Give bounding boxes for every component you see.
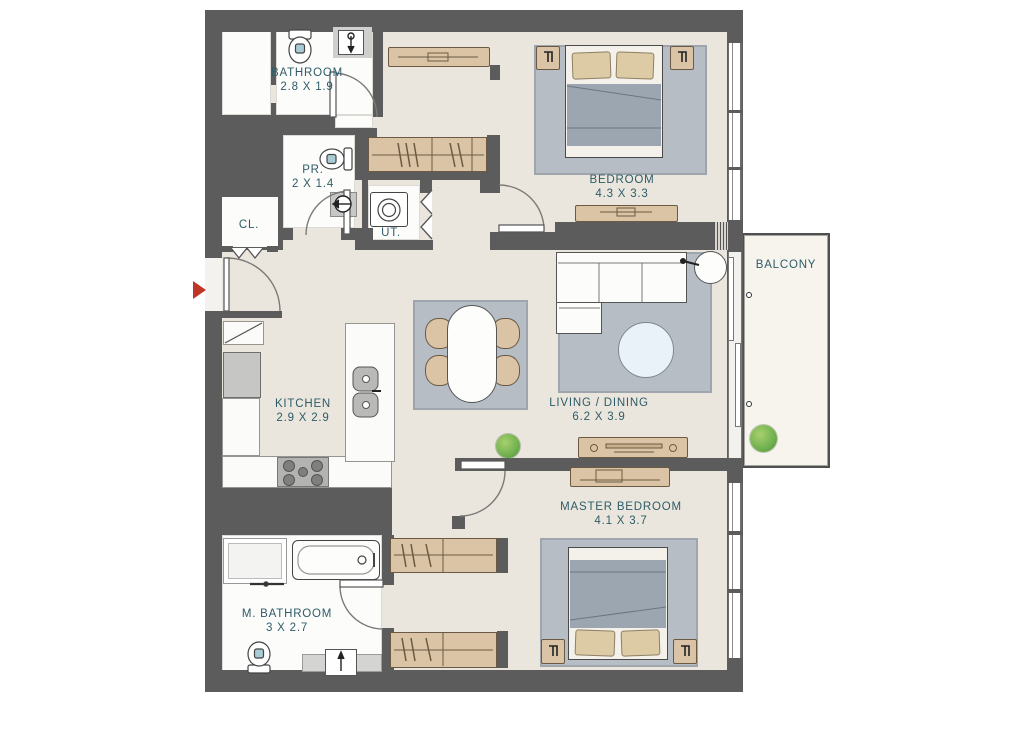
refrigerator [223, 352, 261, 398]
wall-segment [267, 246, 278, 252]
blanket [567, 84, 661, 146]
coffee-table [618, 322, 674, 378]
room-dims: 2.8 X 1.9 [271, 80, 343, 94]
wall-segment [222, 311, 282, 318]
bedroom-window [728, 113, 742, 167]
entry-arrow-icon [193, 281, 206, 299]
label-master-bedroom: MASTER BEDROOM 4.1 X 3.7 [560, 500, 682, 528]
shower [223, 538, 287, 584]
label-closet: CL. [239, 218, 259, 232]
label-utility: UT. [381, 226, 401, 240]
wall-segment [222, 246, 233, 252]
floor-plan: BATHROOM 2.8 X 1.9 PR. 2 X 1.4 CL. UT. B… [0, 0, 1024, 735]
wall-segment [222, 488, 392, 535]
wall-segment [420, 180, 432, 193]
wall-bottom [205, 670, 743, 692]
room-shower-closet [222, 27, 271, 115]
master-wardrobe [390, 538, 497, 573]
bathroom-doorway [335, 115, 373, 128]
room-name: CL. [239, 218, 259, 232]
room-name: BEDROOM [589, 173, 654, 187]
sink-pedestal [330, 192, 357, 217]
wall-segment [487, 135, 500, 180]
slider-panel [728, 257, 734, 341]
bedroom-bed [565, 45, 663, 158]
label-balcony: BALCONY [756, 258, 817, 272]
wall-segment [480, 180, 500, 193]
master-window [728, 535, 742, 589]
pillow [575, 629, 616, 656]
wall-left [205, 10, 222, 692]
wall-segment [497, 538, 508, 573]
pillow [621, 629, 661, 656]
kitchen-counter [222, 398, 260, 456]
room-dims: 6.2 X 3.9 [549, 410, 649, 424]
master-wardrobe [390, 632, 497, 668]
slider-panel [735, 343, 741, 427]
room-name: LIVING / DINING [549, 396, 649, 410]
label-living-dining: LIVING / DINING 6.2 X 3.9 [549, 396, 649, 424]
label-kitchen: KITCHEN 2.9 X 2.9 [275, 397, 331, 425]
room-name: UT. [381, 226, 401, 240]
pillow [616, 51, 655, 79]
master-bed [568, 547, 668, 660]
nightstand [673, 639, 697, 664]
blanket [570, 560, 666, 628]
nightstand [541, 639, 565, 664]
kitchen-cabinet [223, 321, 264, 345]
sink [325, 649, 357, 676]
room-dims: 2.9 X 2.9 [275, 411, 331, 425]
bedroom-window [728, 170, 742, 220]
room-name: BALCONY [756, 258, 817, 272]
wall-hatch [714, 222, 728, 250]
label-bedroom: BEDROOM 4.3 X 3.3 [589, 173, 654, 201]
room-dims: 4.3 X 3.3 [589, 187, 654, 201]
wall-segment [283, 228, 293, 240]
entry-doorway [205, 258, 222, 311]
label-powder: PR. 2 X 1.4 [292, 163, 334, 191]
label-bathroom: BATHROOM 2.8 X 1.9 [271, 66, 343, 94]
wall-top [205, 10, 743, 32]
room-dims: 2 X 1.4 [292, 177, 334, 191]
master-window [728, 593, 742, 658]
wall-segment [355, 240, 433, 250]
wall-segment [368, 172, 490, 180]
room-name: MASTER BEDROOM [560, 500, 682, 514]
nightstand [670, 46, 694, 70]
master-console [570, 467, 670, 487]
wall-segment [497, 631, 508, 668]
master-window [728, 483, 742, 531]
room-name: M. BATHROOM [242, 607, 332, 621]
label-master-bathroom: M. BATHROOM 3 X 2.7 [242, 607, 332, 635]
room-name: PR. [292, 163, 334, 177]
washing-machine [370, 192, 408, 227]
sofa-chaise [556, 302, 602, 334]
pillow [572, 51, 612, 79]
room-name: KITCHEN [275, 397, 331, 411]
bedroom-window [728, 43, 742, 110]
room-dims: 3 X 2.7 [242, 621, 332, 635]
living-plant-icon [496, 434, 520, 458]
bedroom-dresser [575, 205, 678, 222]
sink [338, 30, 364, 55]
nightstand [536, 46, 560, 70]
hall-wardrobe [368, 137, 487, 172]
wall-segment [490, 65, 500, 80]
wall-segment [341, 228, 373, 240]
room-dims: 4.1 X 3.7 [560, 514, 682, 528]
hall-console [388, 47, 490, 67]
wall-segment [452, 516, 465, 529]
wall-segment [555, 222, 728, 250]
bathtub [292, 540, 380, 580]
balcony-plant-icon [750, 425, 777, 452]
kitchen-counter [345, 323, 395, 462]
dining-table [447, 305, 497, 403]
stove [277, 457, 329, 487]
room-name: BATHROOM [271, 66, 343, 80]
wall-segment [373, 27, 383, 117]
living-console [578, 437, 688, 458]
sofa [556, 252, 687, 303]
side-table [694, 251, 727, 284]
